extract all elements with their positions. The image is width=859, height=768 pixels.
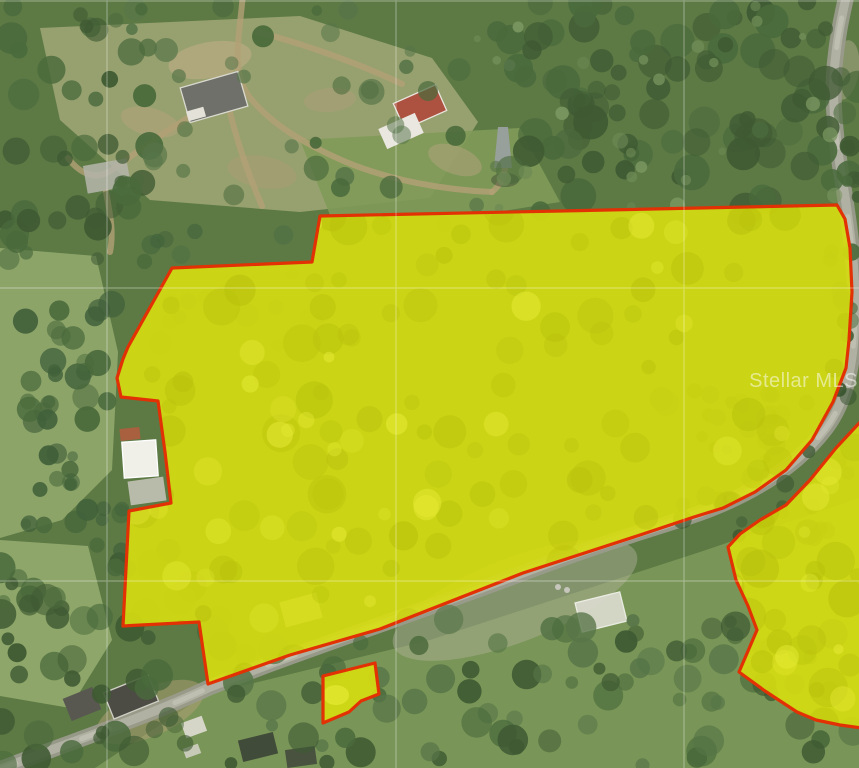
tree-canopy xyxy=(96,501,111,516)
parcel-blotch-light xyxy=(651,261,664,274)
parcel-blotch-dark xyxy=(220,560,243,583)
parcel-blotch-dark xyxy=(571,233,589,251)
parcel-blotch-dark xyxy=(313,323,344,354)
parcel-blotch-light xyxy=(775,645,799,669)
tree-canopy xyxy=(47,443,67,463)
tree-canopy xyxy=(405,46,416,57)
parcel-blotch-dark xyxy=(404,395,419,410)
parcel-blotch-light xyxy=(267,422,293,448)
tree-canopy xyxy=(21,515,38,532)
tree-canopy xyxy=(72,384,99,411)
aerial-map-viewport[interactable]: Stellar MLS xyxy=(0,0,859,768)
parcel-blotch-light xyxy=(484,412,509,437)
parcel-blotch-light xyxy=(162,561,191,590)
parcel-blotch-light xyxy=(489,508,509,528)
parcel-blotch-dark xyxy=(310,294,336,320)
tree-canopy xyxy=(177,121,193,137)
tree-canopy xyxy=(841,175,853,187)
tree-canopy xyxy=(331,178,350,197)
tree-canopy xyxy=(321,23,340,42)
parcel-blotch-dark xyxy=(747,460,769,482)
parcel-blotch-dark xyxy=(417,424,432,439)
parcel-blotch-dark xyxy=(195,605,212,622)
tree-canopy xyxy=(10,666,28,684)
parcel-blotch-dark xyxy=(436,247,453,264)
tree-canopy xyxy=(457,679,481,703)
parcel-blotch-dark xyxy=(345,528,372,555)
tree-canopy xyxy=(497,172,511,186)
tree-canopy xyxy=(76,499,98,521)
parcel-blotch-dark xyxy=(356,406,382,432)
parcel-blotch-dark xyxy=(433,415,466,448)
tree-canopy xyxy=(88,92,103,107)
tree-canopy xyxy=(135,3,147,15)
parcel-blotch-light xyxy=(774,426,789,441)
tree-canopy xyxy=(62,473,80,491)
tree-canopy xyxy=(681,175,691,185)
tree-canopy xyxy=(582,151,605,174)
tree-canopy xyxy=(718,37,733,52)
tree-canopy xyxy=(64,670,80,686)
tree-canopy xyxy=(108,13,123,28)
tree-canopy xyxy=(759,49,790,80)
tree-canopy xyxy=(626,148,636,158)
parcel-blotch-light xyxy=(799,526,811,538)
parcel-blotch-dark xyxy=(173,371,194,392)
tree-canopy xyxy=(513,22,524,33)
parcel-blotch-dark xyxy=(620,433,650,463)
tree-canopy xyxy=(288,722,319,753)
tree-canopy xyxy=(154,38,178,62)
parcel-small-light-spot xyxy=(323,685,349,705)
tree-canopy xyxy=(721,612,751,642)
tree-canopy xyxy=(566,676,579,689)
tree-canopy xyxy=(13,309,38,334)
tree-canopy xyxy=(653,74,665,86)
tree-canopy xyxy=(227,685,245,703)
tree-canopy xyxy=(736,516,747,527)
parcel-blotch-light xyxy=(194,457,222,485)
tree-canopy xyxy=(24,720,54,750)
parcel-blotch-dark xyxy=(825,359,844,378)
tree-canopy xyxy=(333,76,351,94)
tree-canopy xyxy=(177,735,194,752)
tree-canopy xyxy=(611,65,627,81)
parcel-blotch-dark xyxy=(229,500,260,531)
tree-canopy xyxy=(19,246,33,260)
parcel-blotch-dark xyxy=(287,511,317,541)
tree-canopy xyxy=(469,198,484,213)
tree-canopy xyxy=(674,154,710,190)
tree-canopy xyxy=(71,135,98,162)
tree-canopy xyxy=(176,164,190,178)
tree-canopy xyxy=(91,252,104,265)
parcel-blotch-light xyxy=(413,489,441,517)
parcel-blotch-dark xyxy=(144,366,160,382)
tree-canopy xyxy=(627,614,640,627)
tree-canopy xyxy=(724,616,736,628)
parcel-blotch-dark xyxy=(564,438,579,453)
notch-house-pad xyxy=(128,477,167,506)
parcel-blotch-dark xyxy=(404,288,438,322)
parcel-blotch-dark xyxy=(577,298,613,334)
tree-canopy xyxy=(159,707,179,727)
tree-canopy xyxy=(818,21,833,36)
tree-canopy xyxy=(90,538,105,553)
tree-canopy xyxy=(776,475,794,493)
tree-canopy xyxy=(49,471,65,487)
tree-canopy xyxy=(409,636,428,655)
tree-canopy xyxy=(8,79,39,110)
notch-house xyxy=(122,440,158,478)
tree-canopy xyxy=(490,161,501,172)
tree-canopy xyxy=(840,388,857,405)
tree-canopy xyxy=(709,58,718,67)
tree-canopy xyxy=(821,169,843,191)
parcel-blotch-dark xyxy=(305,273,324,292)
parcel-blotch-dark xyxy=(296,381,333,418)
tree-canopy xyxy=(51,326,71,346)
tree-canopy xyxy=(285,139,299,153)
tree-canopy xyxy=(558,166,576,184)
tree-canopy xyxy=(498,725,529,756)
tree-canopy xyxy=(67,451,78,462)
tree-canopy xyxy=(225,56,239,70)
tree-canopy xyxy=(710,695,725,710)
parcel-blotch-dark xyxy=(496,337,523,364)
tree-canopy xyxy=(44,587,66,609)
parcel-blotch-dark xyxy=(486,269,506,289)
tree-canopy xyxy=(693,725,724,756)
tree-canopy xyxy=(392,125,411,144)
parcel-blotch-light xyxy=(830,686,855,711)
parcel-blotch-light xyxy=(802,483,830,511)
tree-canopy xyxy=(823,127,838,142)
parcel-blotch-light xyxy=(205,518,231,544)
tree-canopy xyxy=(752,16,763,27)
tree-canopy xyxy=(574,6,596,28)
parcel-blotch-light xyxy=(298,412,314,428)
tree-canopy xyxy=(92,685,111,704)
parcel-blotch-dark xyxy=(389,521,418,550)
tree-canopy xyxy=(172,245,191,264)
parked-car-1 xyxy=(564,587,570,593)
tree-canopy xyxy=(85,208,106,229)
parcel-blotch-light xyxy=(327,442,341,456)
parcel-blotch-dark xyxy=(343,329,361,347)
tree-canopy xyxy=(187,224,202,239)
tree-canopy xyxy=(692,40,705,53)
tree-canopy xyxy=(727,137,761,171)
parcel-blotch-light xyxy=(249,603,278,632)
tree-canopy xyxy=(637,647,665,675)
parcel-blotch-dark xyxy=(631,277,656,302)
tree-canopy xyxy=(590,49,613,72)
tree-canopy xyxy=(488,633,508,653)
tree-canopy xyxy=(831,67,850,86)
tree-canopy xyxy=(17,209,40,232)
tree-canopy xyxy=(107,558,125,576)
tree-canopy xyxy=(144,152,163,171)
tree-canopy xyxy=(48,367,63,382)
parcel-blotch-dark xyxy=(671,252,704,285)
tree-canopy xyxy=(446,126,466,146)
tree-canopy xyxy=(701,618,723,640)
tree-canopy xyxy=(112,176,141,205)
tree-canopy xyxy=(274,225,294,245)
tree-canopy xyxy=(256,690,286,720)
tree-canopy xyxy=(418,81,438,101)
parcel-blotch-light xyxy=(242,375,259,392)
notch-house-roof xyxy=(119,427,140,441)
parcel-blotch-dark xyxy=(320,420,343,443)
parcel-blotch-dark xyxy=(751,650,774,673)
parcel-blotch-light xyxy=(801,574,820,593)
aerial-imagery xyxy=(0,0,859,768)
parcel-blotch-dark xyxy=(669,330,684,345)
tree-canopy xyxy=(146,721,164,739)
parcel-blotch-dark xyxy=(602,410,630,438)
tree-canopy xyxy=(252,25,274,47)
tree-canopy xyxy=(448,58,471,81)
parcel-blotch-dark xyxy=(382,304,400,322)
tree-canopy xyxy=(487,21,508,42)
tree-canopy xyxy=(426,664,455,693)
tree-canopy xyxy=(781,93,810,122)
tree-canopy xyxy=(461,707,492,738)
tree-canopy xyxy=(573,94,591,112)
tree-canopy xyxy=(615,630,638,653)
parcel-blotch-dark xyxy=(624,305,641,322)
parcel-blotch-light xyxy=(240,340,265,365)
parcel-blotch-dark xyxy=(425,533,451,559)
tree-canopy xyxy=(791,152,820,181)
parcel-blotch-dark xyxy=(312,586,329,603)
tree-canopy xyxy=(604,84,620,100)
parcel-blotch-light xyxy=(833,644,843,654)
parcel-blotch-dark xyxy=(203,288,240,325)
tree-canopy xyxy=(615,6,635,26)
tree-canopy xyxy=(560,178,596,214)
tree-canopy xyxy=(150,234,165,249)
tree-canopy xyxy=(639,55,649,65)
tree-canopy xyxy=(98,134,119,155)
parcel-blotch-dark xyxy=(585,504,601,520)
tree-canopy xyxy=(554,129,584,159)
tree-canopy xyxy=(577,57,589,69)
tree-canopy xyxy=(84,18,108,42)
tree-canopy xyxy=(133,84,156,107)
tree-canopy xyxy=(626,172,637,183)
tree-canopy xyxy=(137,254,152,269)
parcel-blotch-light xyxy=(260,515,285,540)
tree-canopy xyxy=(781,28,802,49)
parcel-blotch-dark xyxy=(491,373,516,398)
tree-canopy xyxy=(799,33,806,40)
tree-canopy xyxy=(60,740,83,763)
tree-canopy xyxy=(339,0,358,19)
tree-canopy xyxy=(101,71,118,88)
parcel-blotch-light xyxy=(340,429,364,453)
parcel-blotch-dark xyxy=(634,505,659,530)
tree-canopy xyxy=(8,643,27,662)
tree-canopy xyxy=(304,156,329,181)
tree-canopy xyxy=(533,665,552,684)
tree-canopy xyxy=(399,60,413,74)
tree-canopy xyxy=(359,79,385,105)
tree-canopy xyxy=(827,188,842,203)
tree-canopy xyxy=(2,632,15,645)
tree-canopy xyxy=(48,211,66,229)
tree-canopy xyxy=(752,122,769,139)
tree-canopy xyxy=(434,605,463,634)
tree-canopy xyxy=(602,673,620,691)
parcel-blotch-dark xyxy=(500,470,528,498)
tree-canopy xyxy=(76,354,94,372)
tree-canopy xyxy=(474,35,481,42)
tree-canopy xyxy=(21,371,42,392)
parcel-blotch-dark xyxy=(312,478,343,509)
tree-canopy xyxy=(630,29,655,54)
tree-canopy xyxy=(519,165,533,179)
tree-canopy xyxy=(609,104,626,121)
tree-canopy xyxy=(10,41,28,59)
tree-canopy xyxy=(543,69,568,94)
parcel-blotch-light xyxy=(511,292,540,321)
tree-canopy xyxy=(3,138,30,165)
parcel-blotch-dark xyxy=(383,560,400,577)
tree-canopy xyxy=(462,661,480,679)
tree-canopy xyxy=(593,663,605,675)
tree-canopy xyxy=(310,137,322,149)
parked-car-0 xyxy=(555,584,561,590)
tree-canopy xyxy=(639,99,669,129)
parcel-blotch-dark xyxy=(162,297,179,314)
parcel-blotch-light xyxy=(713,437,742,466)
tree-canopy xyxy=(674,665,702,693)
parcel-blotch-light xyxy=(324,352,335,363)
parcel-blotch-dark xyxy=(467,442,483,458)
tree-canopy xyxy=(635,161,647,173)
parcel-blotch-light xyxy=(270,396,296,422)
parcel-blotch-dark xyxy=(724,263,743,282)
tree-canopy xyxy=(555,107,568,120)
tree-canopy xyxy=(33,482,48,497)
tree-canopy xyxy=(36,517,53,534)
parcel-blotch-light xyxy=(628,213,654,239)
tree-canopy xyxy=(93,732,106,745)
tree-canopy xyxy=(135,676,159,700)
tree-canopy xyxy=(49,300,69,320)
tree-canopy xyxy=(421,742,440,761)
tree-canopy xyxy=(126,23,138,35)
tree-canopy xyxy=(37,409,57,429)
tree-canopy xyxy=(335,728,355,748)
parcel-blotch-light xyxy=(196,569,214,587)
tree-canopy xyxy=(87,604,113,630)
tree-canopy xyxy=(538,729,561,752)
tree-canopy xyxy=(833,102,856,125)
tree-canopy xyxy=(119,736,149,766)
tree-canopy xyxy=(58,645,87,674)
tree-canopy xyxy=(402,689,428,715)
tree-canopy xyxy=(504,59,516,71)
tree-canopy xyxy=(301,681,324,704)
tree-canopy xyxy=(718,148,726,156)
tree-canopy xyxy=(223,185,244,206)
parcel-blotch-dark xyxy=(727,207,755,235)
tree-canopy xyxy=(578,715,598,735)
tree-canopy xyxy=(806,97,820,111)
parcel-blotch-dark xyxy=(764,609,786,631)
tree-canopy xyxy=(40,136,67,163)
tree-canopy xyxy=(312,5,323,16)
parcel-blotch-dark xyxy=(297,548,334,585)
parcel-blotch-dark xyxy=(544,333,568,357)
tree-canopy xyxy=(62,80,82,100)
tree-canopy xyxy=(524,22,553,51)
parcel-blotch-dark xyxy=(641,360,655,374)
tree-canopy xyxy=(709,644,739,674)
parcel-blotch-dark xyxy=(416,253,439,276)
parcel-blotch-dark xyxy=(600,486,615,501)
tree-canopy xyxy=(266,719,278,731)
tree-canopy xyxy=(566,612,596,642)
tree-canopy xyxy=(802,740,825,763)
parcel-blotch-dark xyxy=(293,444,329,480)
tree-canopy xyxy=(116,150,130,164)
parcel-blotch-light xyxy=(332,527,347,542)
tree-canopy xyxy=(237,70,251,84)
tree-canopy xyxy=(588,81,606,99)
parcel-blotch-dark xyxy=(508,433,530,455)
tree-canopy xyxy=(19,595,40,616)
tree-canopy xyxy=(750,1,760,11)
parcel-blotch-dark xyxy=(571,460,606,495)
parcel-blotch-dark xyxy=(451,225,471,245)
tree-canopy xyxy=(683,128,711,156)
tree-canopy xyxy=(515,66,536,87)
parcel-blotch-light xyxy=(364,595,376,607)
parcel-blotch-dark xyxy=(817,542,855,580)
parcel-blotch-dark xyxy=(331,272,347,288)
tree-canopy xyxy=(172,69,186,83)
parcel-blotch-light xyxy=(386,413,408,435)
tree-canopy xyxy=(661,130,685,154)
tree-canopy xyxy=(37,56,65,84)
parcel-blotch-dark xyxy=(470,481,496,507)
parcel-blotch-dark xyxy=(425,461,452,488)
parcel-blotch-dark xyxy=(372,216,392,236)
tree-canopy xyxy=(492,56,501,65)
tree-canopy xyxy=(612,133,628,149)
tree-canopy xyxy=(665,56,690,81)
parcel-blotch-light xyxy=(378,508,391,521)
tree-canopy xyxy=(380,176,403,199)
